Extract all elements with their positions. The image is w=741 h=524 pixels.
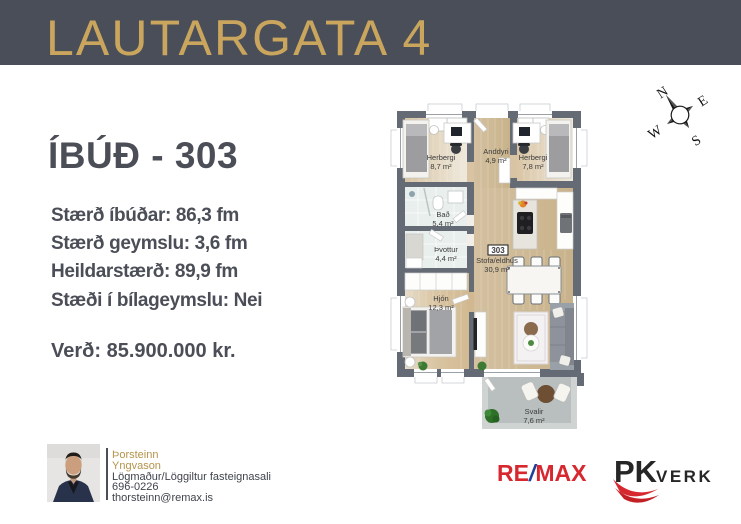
svg-text:7,8 m²: 7,8 m² <box>522 162 544 171</box>
svg-text:4,4 m²: 4,4 m² <box>435 254 457 263</box>
svg-text:4,9 m²: 4,9 m² <box>485 156 507 165</box>
svg-text:7,6 m²: 7,6 m² <box>523 416 545 425</box>
svg-text:Stofa/eldhús: Stofa/eldhús <box>476 256 518 265</box>
svg-text:Herbergi: Herbergi <box>519 153 548 162</box>
svg-text:8,7 m²: 8,7 m² <box>430 162 452 171</box>
svg-text:S: S <box>689 133 704 150</box>
svg-text:Anddyri: Anddyri <box>483 147 509 156</box>
svg-text:303: 303 <box>491 246 505 255</box>
svg-text:E: E <box>696 93 711 110</box>
svg-text:W: W <box>646 123 666 143</box>
svg-text:Bað: Bað <box>436 210 449 219</box>
svg-text:Hjón: Hjón <box>433 294 448 303</box>
svg-text:Þvottur: Þvottur <box>434 245 458 254</box>
svg-text:5,4 m²: 5,4 m² <box>432 219 454 228</box>
svg-text:Herbergi: Herbergi <box>427 153 456 162</box>
svg-text:30,9 m²: 30,9 m² <box>484 265 510 274</box>
svg-text:VERK: VERK <box>656 467 713 486</box>
svg-text:12,3 m²: 12,3 m² <box>428 303 454 312</box>
svg-text:PK: PK <box>614 454 658 489</box>
svg-text:Svalir: Svalir <box>525 407 544 416</box>
